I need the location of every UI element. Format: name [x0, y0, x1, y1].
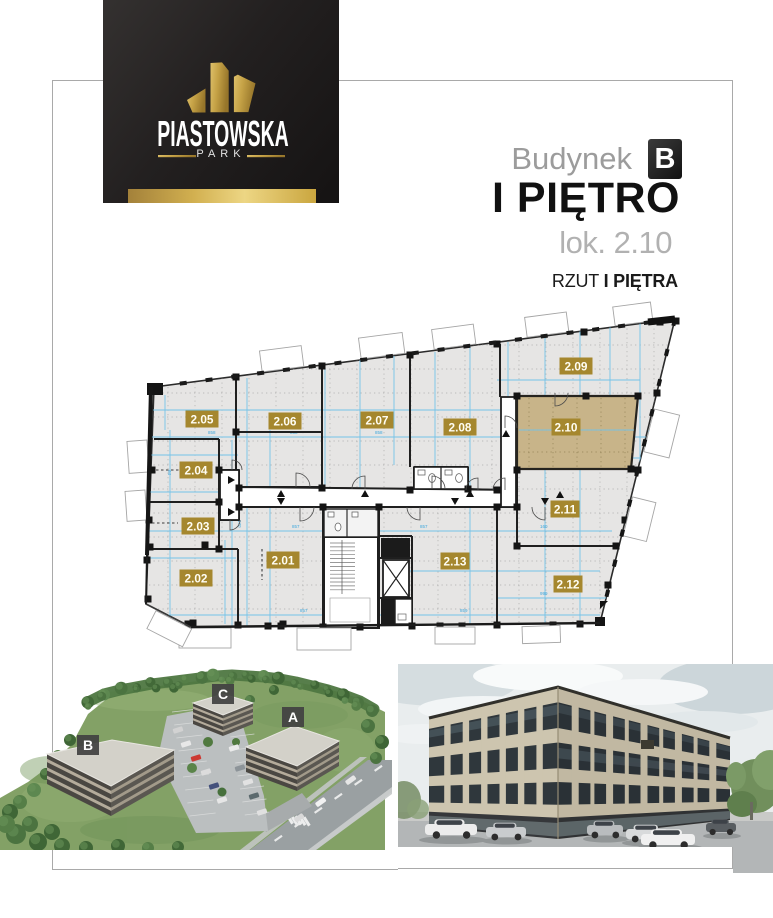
svg-text:2.06: 2.06 [274, 415, 297, 429]
svg-text:160: 160 [540, 524, 548, 529]
svg-text:999: 999 [540, 591, 548, 596]
svg-text:857: 857 [420, 524, 428, 529]
svg-text:2.08: 2.08 [449, 421, 472, 435]
svg-text:858: 858 [375, 430, 383, 435]
svg-text:859: 859 [460, 608, 468, 613]
svg-text:A: A [288, 709, 298, 725]
svg-text:2.04: 2.04 [185, 464, 208, 478]
svg-text:2.13: 2.13 [444, 555, 467, 569]
svg-text:857: 857 [292, 524, 300, 529]
svg-text:2.12: 2.12 [557, 578, 580, 592]
svg-text:2.02: 2.02 [185, 572, 208, 586]
svg-text:2.11: 2.11 [554, 503, 577, 517]
svg-text:2.10: 2.10 [555, 421, 578, 435]
svg-text:2.07: 2.07 [366, 414, 389, 428]
svg-text:C: C [218, 686, 228, 702]
svg-text:64: 64 [167, 470, 172, 476]
svg-text:857: 857 [300, 608, 308, 613]
svg-text:B: B [83, 737, 93, 753]
svg-text:2.09: 2.09 [565, 360, 588, 374]
svg-text:2.01: 2.01 [272, 554, 295, 568]
svg-text:2.05: 2.05 [191, 413, 214, 427]
svg-text:2.03: 2.03 [187, 520, 210, 534]
svg-text:858: 858 [208, 430, 216, 435]
